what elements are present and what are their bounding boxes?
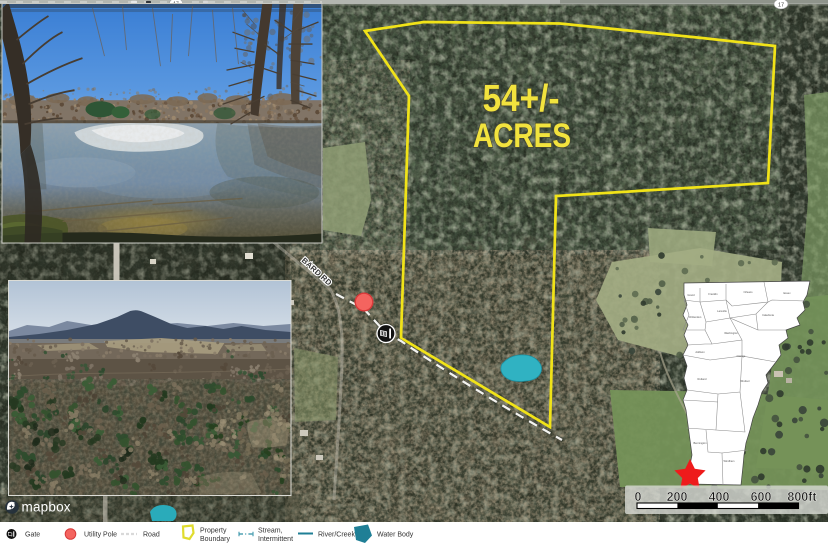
svg-text:Bennington: Bennington	[693, 441, 707, 445]
svg-text:Washington: Washington	[724, 331, 738, 335]
svg-text:Rutland: Rutland	[698, 377, 707, 381]
svg-text:Gate: Gate	[25, 532, 40, 539]
svg-text:54+/-: 54+/-	[483, 78, 560, 120]
svg-text:Essex: Essex	[783, 291, 791, 295]
svg-text:200: 200	[667, 490, 688, 504]
svg-text:0: 0	[635, 490, 642, 504]
svg-text:Boundary: Boundary	[200, 536, 230, 543]
svg-text:Orleans: Orleans	[743, 290, 753, 294]
svg-text:Grand: Grand	[687, 293, 695, 297]
svg-text:Chittenden: Chittenden	[689, 315, 702, 319]
svg-text:600: 600	[751, 490, 772, 504]
svg-text:ACRES: ACRES	[473, 117, 571, 155]
svg-text:Orange: Orange	[737, 354, 746, 358]
svg-text:Road: Road	[143, 532, 160, 539]
svg-text:Franklin: Franklin	[708, 292, 718, 296]
svg-text:Windsor: Windsor	[740, 379, 750, 383]
svg-text:400: 400	[709, 490, 730, 504]
svg-text:Utility Pole: Utility Pole	[84, 532, 117, 539]
svg-text:River/Creek: River/Creek	[318, 532, 355, 539]
svg-text:Lamoille: Lamoille	[717, 309, 727, 313]
svg-text:Caledonia: Caledonia	[762, 313, 774, 317]
svg-text:17: 17	[778, 3, 784, 9]
svg-text:Stream,: Stream,	[258, 528, 283, 535]
svg-text:mapbox: mapbox	[22, 500, 71, 515]
svg-text:Windham: Windham	[724, 459, 735, 463]
svg-text:Water Body: Water Body	[377, 532, 414, 539]
svg-text:800ft: 800ft	[787, 490, 817, 504]
svg-text:Property: Property	[200, 528, 227, 535]
svg-text:Addison: Addison	[695, 350, 705, 354]
svg-text:Intermittent: Intermittent	[258, 536, 293, 543]
